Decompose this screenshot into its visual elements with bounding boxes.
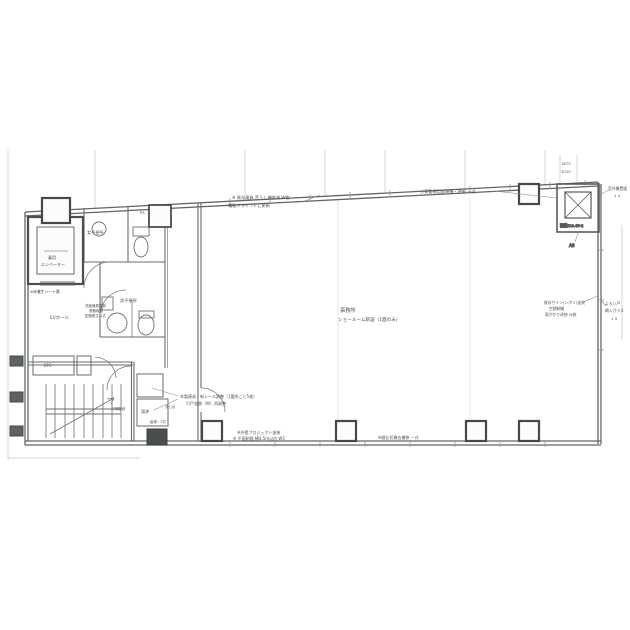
kitchen-note-1: 流し台 xyxy=(165,404,176,409)
leader-lines xyxy=(152,190,609,410)
outdoor-unit-note-1: 室外機置場 xyxy=(608,186,627,191)
grid-label-a8: A8 xyxy=(569,243,575,248)
ev-hall-label: EVホール xyxy=(50,315,70,321)
duct-shaft xyxy=(147,429,167,445)
right-note-3: 雨がかり改修 W枚 xyxy=(545,312,577,317)
bottom-note-a1: ※外壁プロジェクト塗装 xyxy=(237,429,280,435)
column xyxy=(202,421,222,441)
mens-toilet-label: 男子便所 xyxy=(120,297,137,304)
column xyxy=(336,421,356,441)
office-label: 事務所 xyxy=(340,306,356,314)
staircase xyxy=(46,384,121,438)
floor-plan-sheet: 乗用 エレベーター xyxy=(0,0,630,630)
pipe-shaft-box xyxy=(149,205,171,227)
floor-plan-drawing: 乗用 エレベーター xyxy=(0,0,630,630)
wash-note-3: 配管更生 1式 xyxy=(85,313,106,318)
service-rooms xyxy=(33,356,168,445)
doors-note-1: 木製建具・新レール調整（1箇所ごと5枚） xyxy=(180,393,257,399)
elevator-shaft: 乗用 エレベーター xyxy=(28,217,83,285)
ps-closet xyxy=(137,374,163,397)
urinal-icon xyxy=(107,313,127,333)
right-outside-note-1: よろい戸 xyxy=(605,301,620,306)
column xyxy=(519,421,539,441)
elevator-label-line2: エレベーター xyxy=(41,261,65,267)
level-marker xyxy=(10,426,23,436)
eps-label: EPS xyxy=(44,363,52,368)
stair-label: 非常階段 xyxy=(111,406,126,411)
dim-right-top-2: 2010 xyxy=(561,169,571,174)
level-marker xyxy=(10,356,23,366)
elevator-label-line1: 乗用 xyxy=(48,254,56,260)
top-note-1: ※ 既存建具 荒らし補修済 W枚 xyxy=(232,194,291,201)
dim-right-top-1: 1675 xyxy=(561,161,571,166)
level-marker xyxy=(10,392,23,402)
toilet-icon xyxy=(133,227,149,257)
toilet-icon xyxy=(138,311,154,335)
kitchenette-label: 湯沸 xyxy=(141,408,149,414)
outdoor-unit-note-2: 1 4 xyxy=(614,193,621,198)
right-note-2: 空調制御 xyxy=(549,306,564,311)
stair-direction-arrow xyxy=(50,398,114,434)
right-note-1: 既存サイン(シボリ)塗装 xyxy=(544,300,585,305)
office-note: ショールーム新設（1面のみ） xyxy=(338,316,401,323)
wash-note-1: 洗面器具更新 xyxy=(85,303,106,308)
ps-label: PS xyxy=(140,210,145,215)
doors-note-2: 引戸金物（W）再調整 xyxy=(186,400,226,406)
wash-note-2: 便器取替 xyxy=(89,308,103,313)
kitchen-note-2: 給湯・1式 xyxy=(150,419,166,424)
dumbwaiter-note: 小荷物専用昇降機・更新 一式 xyxy=(420,188,477,195)
dumbwaiter-shaft: 積載/16.45·2 A8 xyxy=(557,184,599,248)
top-note-2: 電動ブラインドに更新 xyxy=(228,202,270,209)
building-outline xyxy=(25,182,601,445)
bottom-note-b: ※間仕切撤去補修 一式 xyxy=(378,434,419,440)
womens-toilet-label: 女子便所 xyxy=(87,229,104,236)
right-outside-note-2: 網入ガラス xyxy=(605,308,624,313)
bottom-note-a2: ※ 平面制限 横4.5m以内 W5 xyxy=(233,435,285,441)
right-outside-note-3: 1 4 xyxy=(611,316,618,321)
column xyxy=(42,198,70,223)
column xyxy=(466,421,486,441)
elevator-sheet-note: ※床養生シート敷 xyxy=(30,289,60,294)
dumbwaiter-capacity-label: 積載/16.45·2 xyxy=(560,223,584,228)
